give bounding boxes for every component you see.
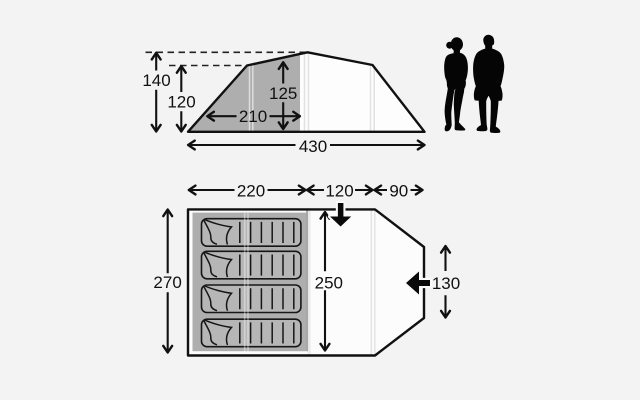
svg-text:430: 430: [299, 137, 327, 156]
svg-text:270: 270: [153, 273, 181, 292]
svg-text:90: 90: [389, 181, 408, 200]
svg-text:220: 220: [237, 181, 265, 200]
svg-text:130: 130: [432, 274, 460, 293]
svg-text:210: 210: [239, 107, 267, 126]
svg-text:120: 120: [167, 93, 195, 112]
svg-text:250: 250: [315, 273, 343, 292]
svg-text:125: 125: [269, 84, 297, 103]
svg-text:120: 120: [325, 181, 353, 200]
svg-text:140: 140: [142, 71, 170, 90]
